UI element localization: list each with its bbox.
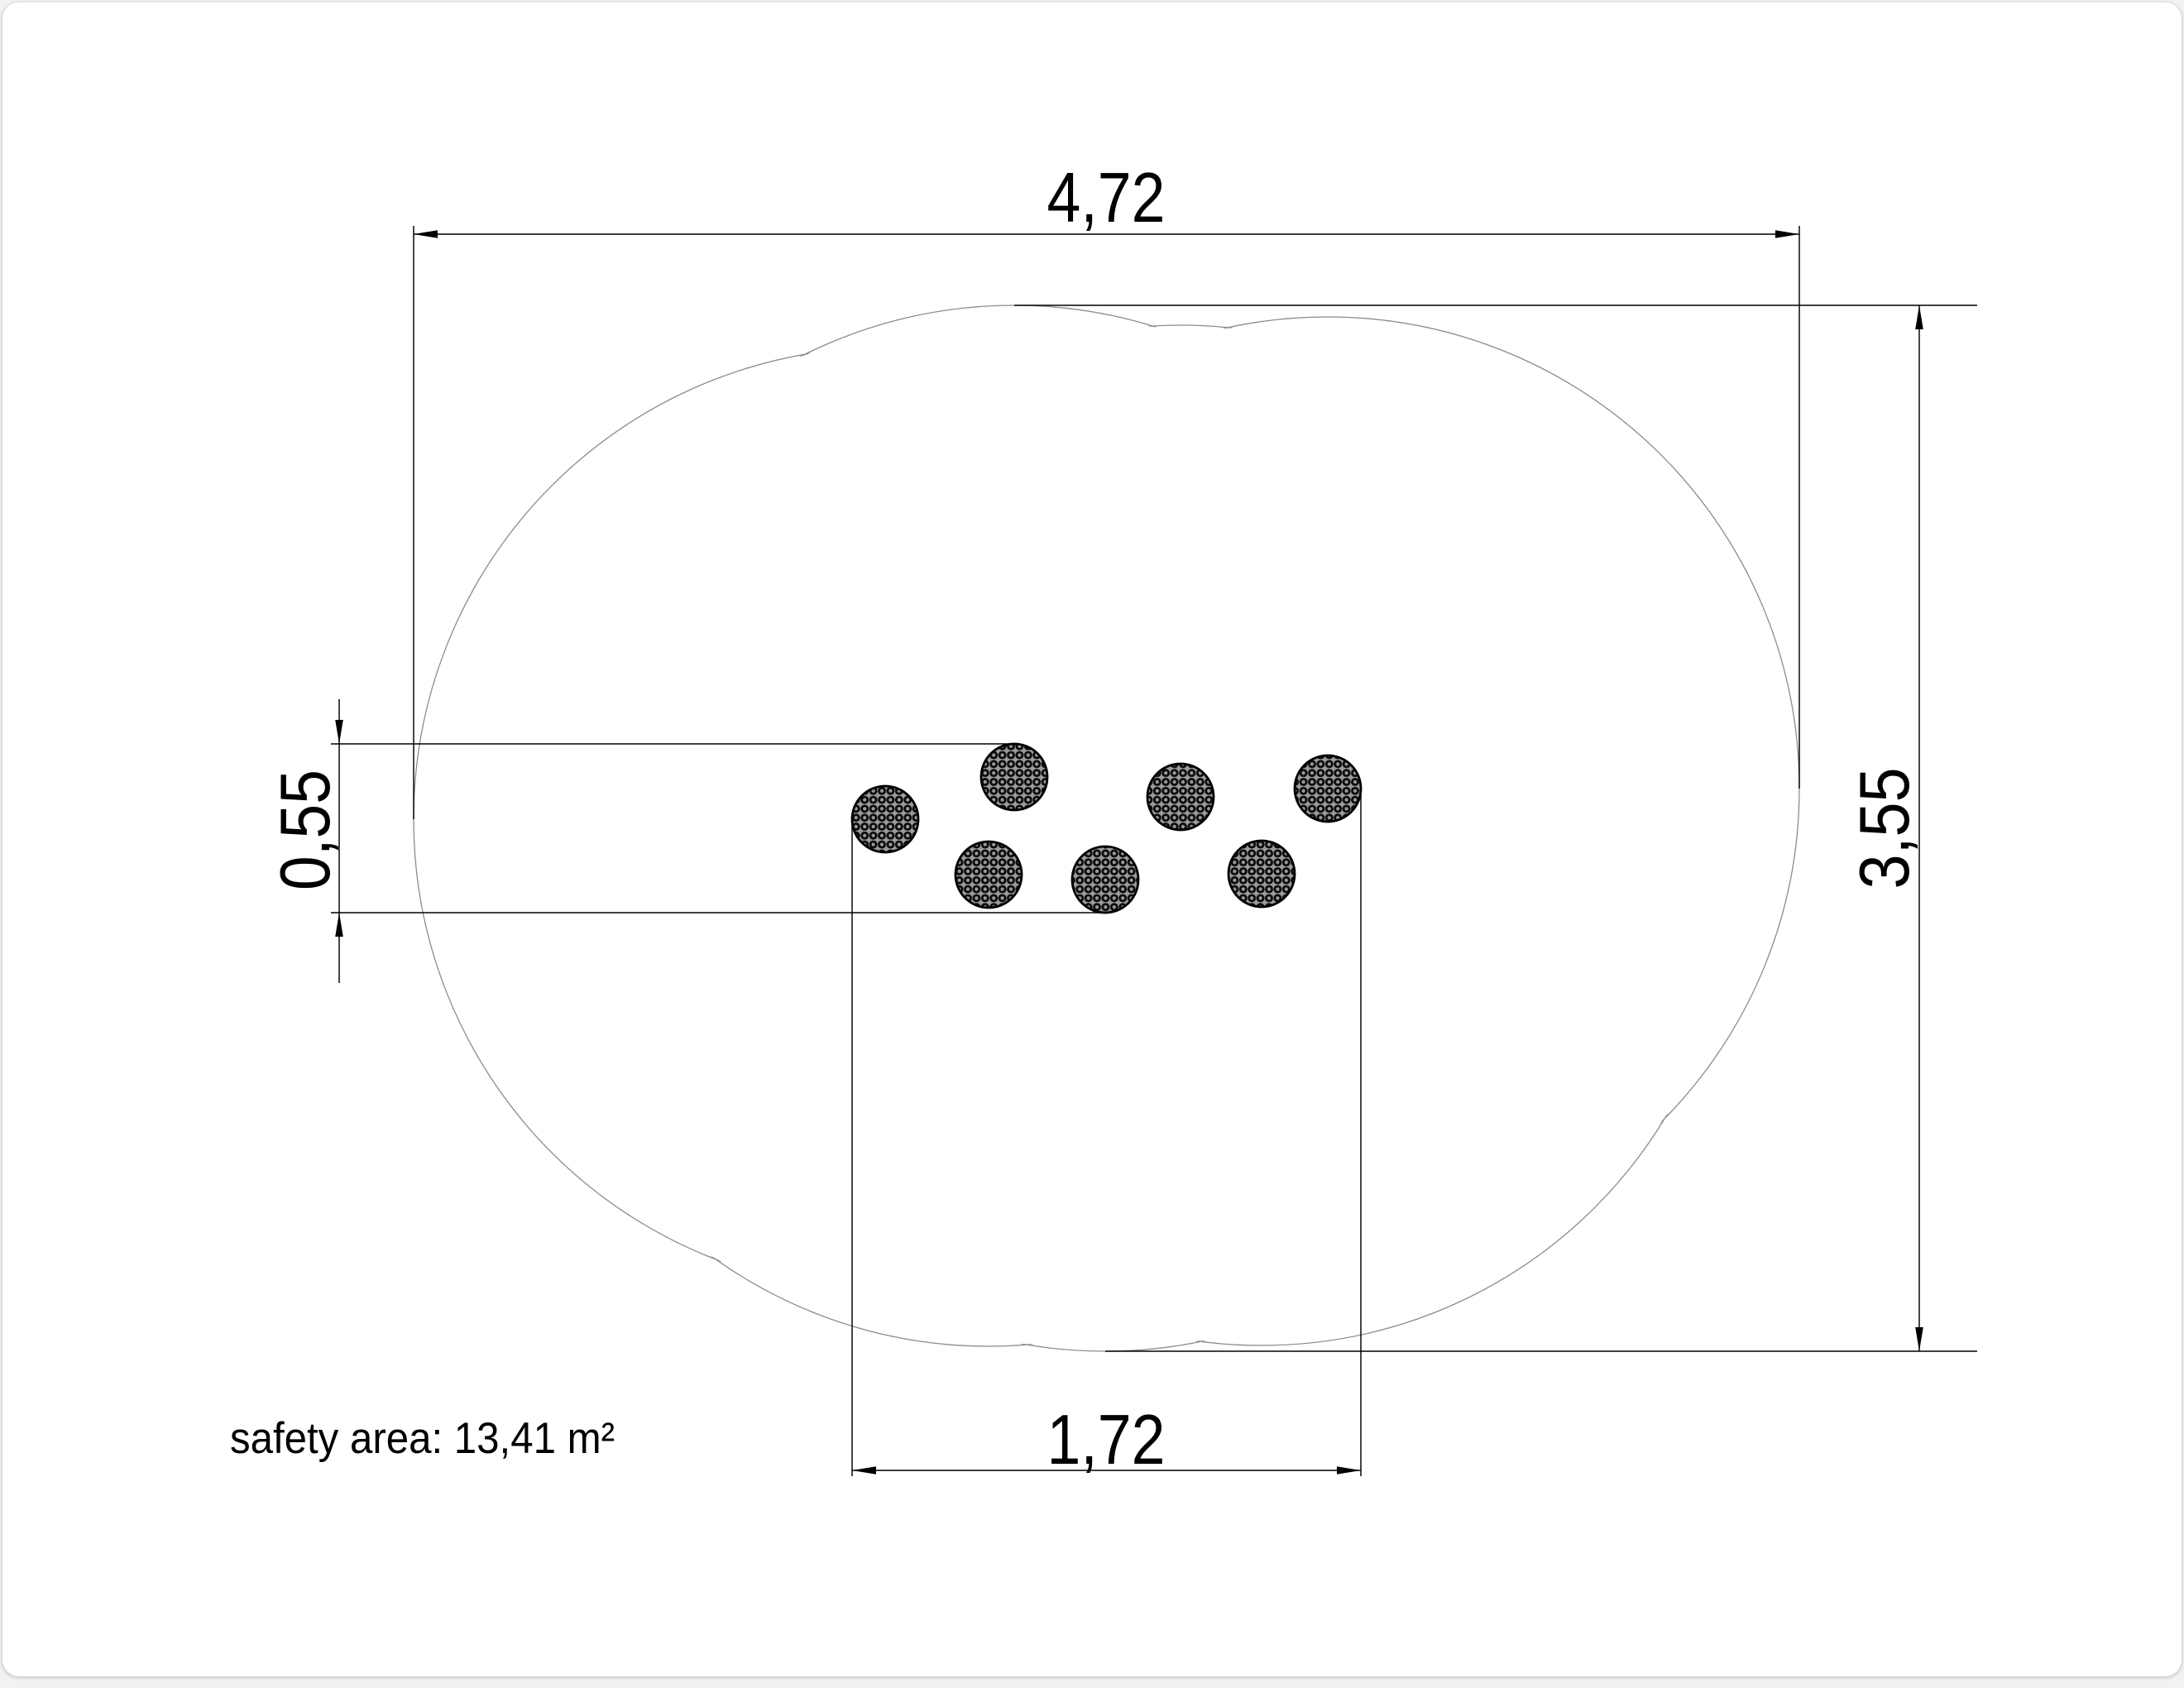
svg-text:4,72: 4,72 (1047, 159, 1166, 237)
svg-text:3,55: 3,55 (1846, 768, 1924, 890)
svg-text:safety area: 13,41 m²: safety area: 13,41 m² (230, 1414, 615, 1463)
svg-text:0,55: 0,55 (266, 770, 345, 890)
svg-text:1,72: 1,72 (1047, 1401, 1166, 1479)
